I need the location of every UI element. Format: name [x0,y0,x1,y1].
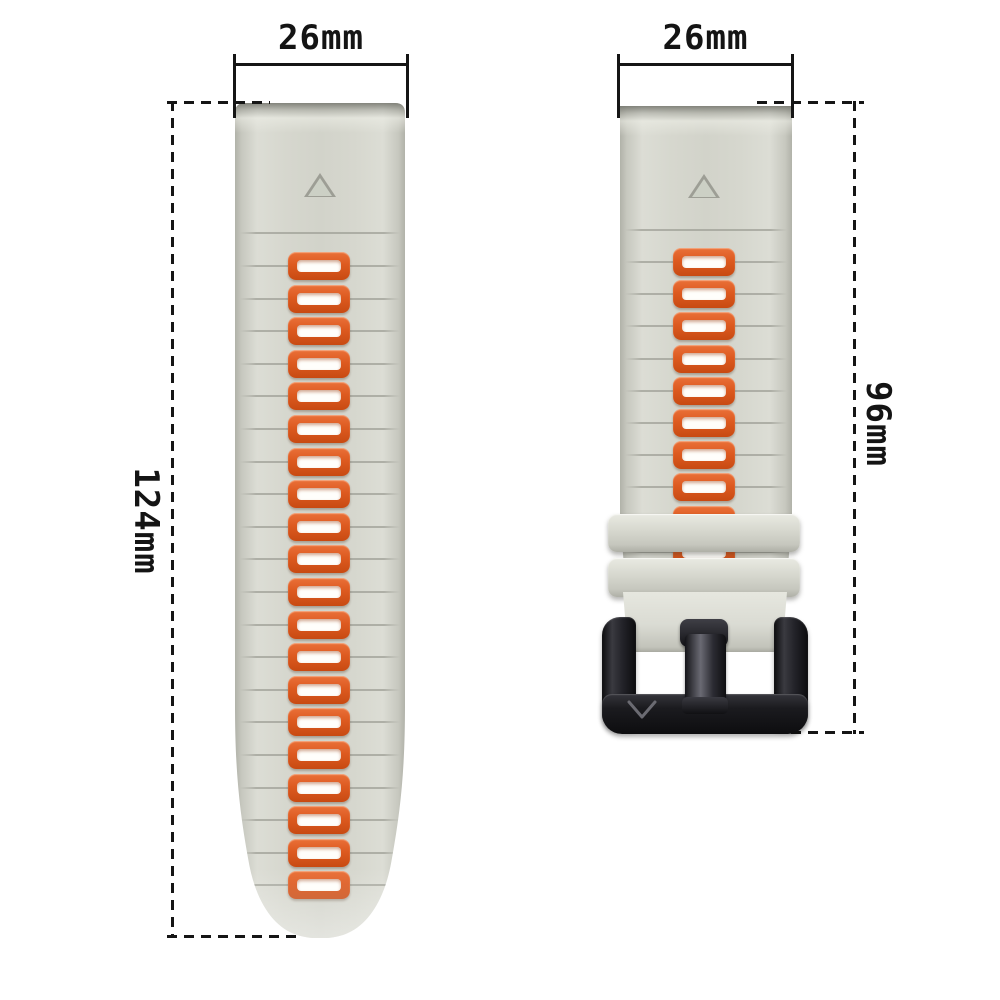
buckle-tongue-tip [682,697,728,714]
strap-adjustment-slot [288,448,350,476]
left-strap-width-label: 26mm [234,18,408,58]
strap-adjustment-slot [288,839,350,867]
strap-adjustment-slot [673,473,735,501]
triangle-marker-icon [304,173,336,197]
right-width-dimension-line [618,63,793,66]
strap-adjustment-slot [673,409,735,437]
left-width-dimension-line [234,63,408,66]
strap-adjustment-slot [288,513,350,541]
strap-adjustment-slot [288,252,350,280]
keeper-loop-1 [608,514,800,552]
right-width-tick-left [617,54,620,118]
buckle-logo-v-icon [626,699,658,721]
keeper-loop-2 [608,558,800,597]
strap-groove [625,229,787,231]
strap-adjustment-slot [288,676,350,704]
strap-adjustment-slot [673,377,735,405]
left-length-extension-bottom [167,935,302,938]
strap-adjustment-slot [673,280,735,308]
strap-adjustment-slot [673,248,735,276]
strap-adjustment-slot [288,806,350,834]
strap-adjustment-slot [288,741,350,769]
strap-adjustment-slot [288,708,350,736]
right-width-tick-right [791,54,794,118]
left-strap-length-label: 124mm [126,467,166,574]
strap-adjustment-slot [288,480,350,508]
buckle-tongue [685,634,726,704]
strap-adjustment-slot [288,643,350,671]
strap-adjustment-slot [288,774,350,802]
strap-adjustment-slot [288,415,350,443]
strap-adjustment-slot [288,871,350,899]
strap-groove [240,232,400,234]
strap-adjustment-slot [288,611,350,639]
left-width-tick-right [406,54,409,118]
strap-adjustment-slot [288,317,350,345]
triangle-marker-icon [688,174,720,198]
left-length-extension-top [167,101,270,104]
right-length-extension-top [757,101,864,104]
left-strap-body [235,103,405,938]
triangle-face [692,179,716,197]
right-length-dimension-line [853,101,856,734]
strap-adjustment-slot [288,545,350,573]
strap-adjustment-slot [288,285,350,313]
product-image: 26mm 26mm 124mm 96mm [0,0,1000,1000]
strap-adjustment-slot [288,350,350,378]
left-width-tick-left [233,54,236,118]
left-length-dimension-line [171,101,174,937]
strap-adjustment-slot [673,441,735,469]
strap-adjustment-slot [673,345,735,373]
right-strap-length-label: 96mm [858,381,898,467]
strap-adjustment-slot [673,312,735,340]
strap-adjustment-slot [288,382,350,410]
right-strap-width-label: 26mm [618,18,793,58]
strap-adjustment-slot [288,578,350,606]
triangle-face [308,178,332,196]
